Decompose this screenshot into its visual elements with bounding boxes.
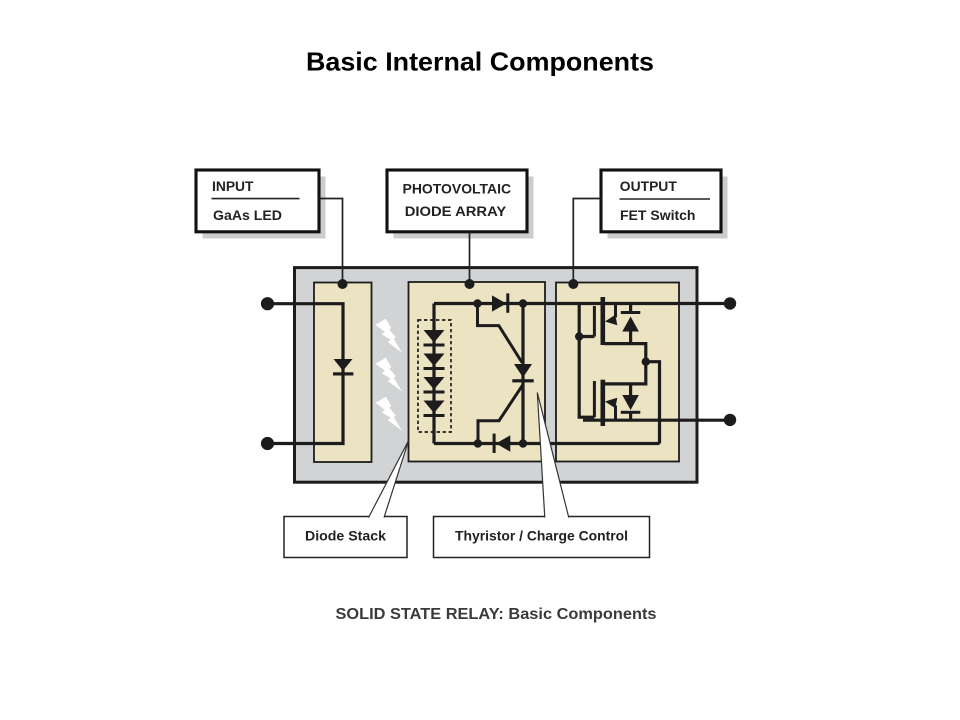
- svg-text:Diode Stack: Diode Stack: [305, 528, 386, 544]
- svg-text:Thyristor / Charge Control: Thyristor / Charge Control: [455, 528, 628, 544]
- svg-text:FET Switch: FET Switch: [620, 208, 696, 223]
- svg-text:Basic Internal Components: Basic Internal Components: [306, 47, 654, 77]
- svg-text:GaAs LED: GaAs LED: [213, 208, 282, 223]
- svg-text:PHOTOVOLTAIC: PHOTOVOLTAIC: [403, 181, 512, 196]
- svg-text:SOLID STATE RELAY: Basic Compo: SOLID STATE RELAY: Basic Components: [336, 606, 657, 623]
- svg-text:INPUT: INPUT: [212, 179, 254, 194]
- svg-text:DIODE ARRAY: DIODE ARRAY: [405, 204, 507, 219]
- svg-text:OUTPUT: OUTPUT: [620, 179, 678, 194]
